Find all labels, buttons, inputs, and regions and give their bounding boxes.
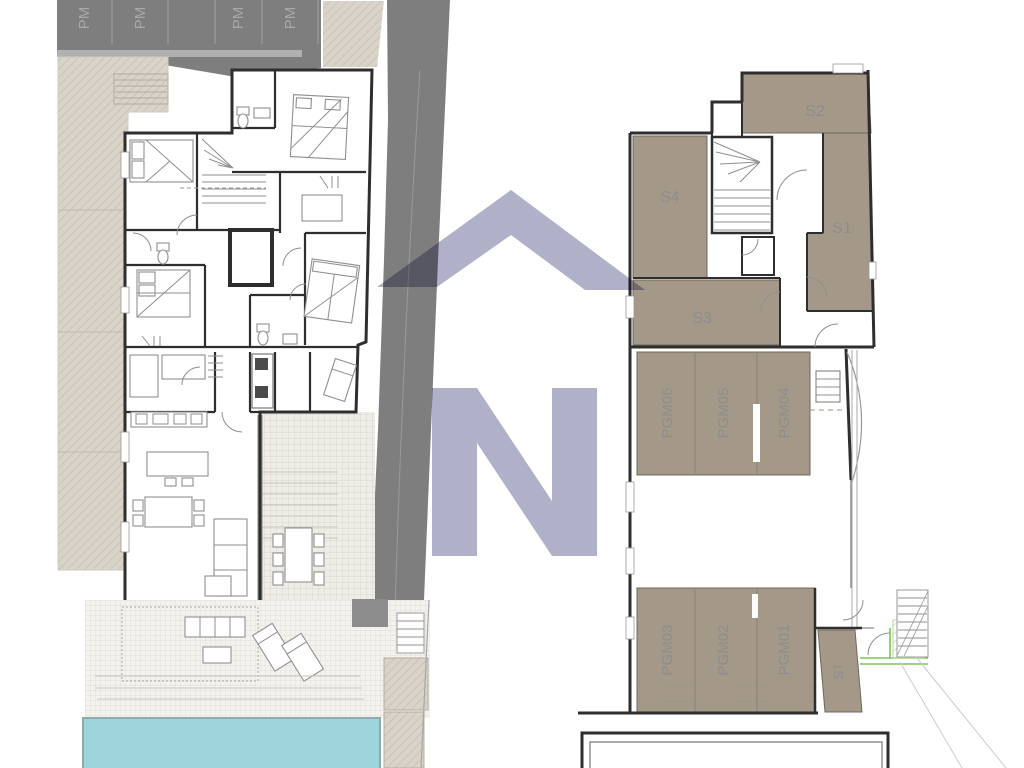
room-label: S3 <box>692 310 712 327</box>
exterior-stair-icon <box>897 590 928 657</box>
hatched-area-bottom <box>384 712 424 768</box>
letter-n-mark <box>432 388 597 556</box>
parking-stall-label: PM <box>76 7 93 30</box>
lower-structure-inner <box>590 742 882 768</box>
window-slot <box>869 262 876 279</box>
toilet-icon <box>157 243 169 264</box>
garage-stall-label: PGM06 <box>659 388 676 439</box>
parking-stall-label: PM <box>230 7 247 30</box>
basement-plan: S4 S2 S1 S3 PGM06 PGM05 PGM04 <box>578 64 1006 768</box>
room-label: S1 <box>832 220 852 237</box>
floor-plan-sheet: PM PM PM PM <box>0 0 1024 768</box>
curb-strip <box>57 50 302 57</box>
wardrobe <box>302 195 342 221</box>
window-slot <box>626 617 634 639</box>
outdoor-dining-table <box>273 528 324 585</box>
garage-stall-label: PGM04 <box>776 388 793 439</box>
stall-gap <box>752 594 758 618</box>
bed-icon <box>304 259 360 323</box>
window-slot <box>121 152 129 178</box>
garage-stall-label: PGM02 <box>715 625 732 676</box>
parking-stall-label: PM <box>282 7 299 30</box>
hatched-area-bottom <box>384 658 428 710</box>
tech-shaft <box>252 354 273 408</box>
small-stair-icon <box>816 371 840 402</box>
ground-floor-site-plan: PM PM PM PM <box>57 0 450 768</box>
terrain-contours <box>900 657 1006 768</box>
lower-structure-outline <box>582 733 888 768</box>
pool <box>83 718 380 768</box>
stall-gap <box>753 404 760 462</box>
outdoor-block <box>352 599 388 627</box>
room-label: S4 <box>660 189 680 206</box>
floor-plan-drawing: PM PM PM PM <box>0 0 1024 768</box>
window-slot <box>121 287 129 313</box>
room-label: S2 <box>805 103 825 120</box>
kitchen-counter <box>131 412 207 427</box>
garage-stall-label: PGM05 <box>715 388 732 439</box>
storage-label: ST <box>831 663 846 680</box>
bed-icon <box>130 140 193 182</box>
bed-icon <box>137 270 190 317</box>
parking-stall-label: PM <box>132 7 149 30</box>
window-slot <box>121 522 129 552</box>
garage-stall-label: PGM01 <box>776 625 793 676</box>
garage-stall-label: PGM03 <box>659 625 676 676</box>
window-slot <box>626 482 634 512</box>
room-s4 <box>633 136 707 278</box>
window-slot <box>626 296 634 318</box>
bed-icon <box>290 95 348 160</box>
utility-cabinet <box>130 355 158 397</box>
hatched-area-top <box>322 0 385 68</box>
window-slot <box>626 548 634 574</box>
window-slot <box>833 64 863 73</box>
garden-stairs <box>397 613 424 653</box>
window-slot <box>121 432 129 462</box>
